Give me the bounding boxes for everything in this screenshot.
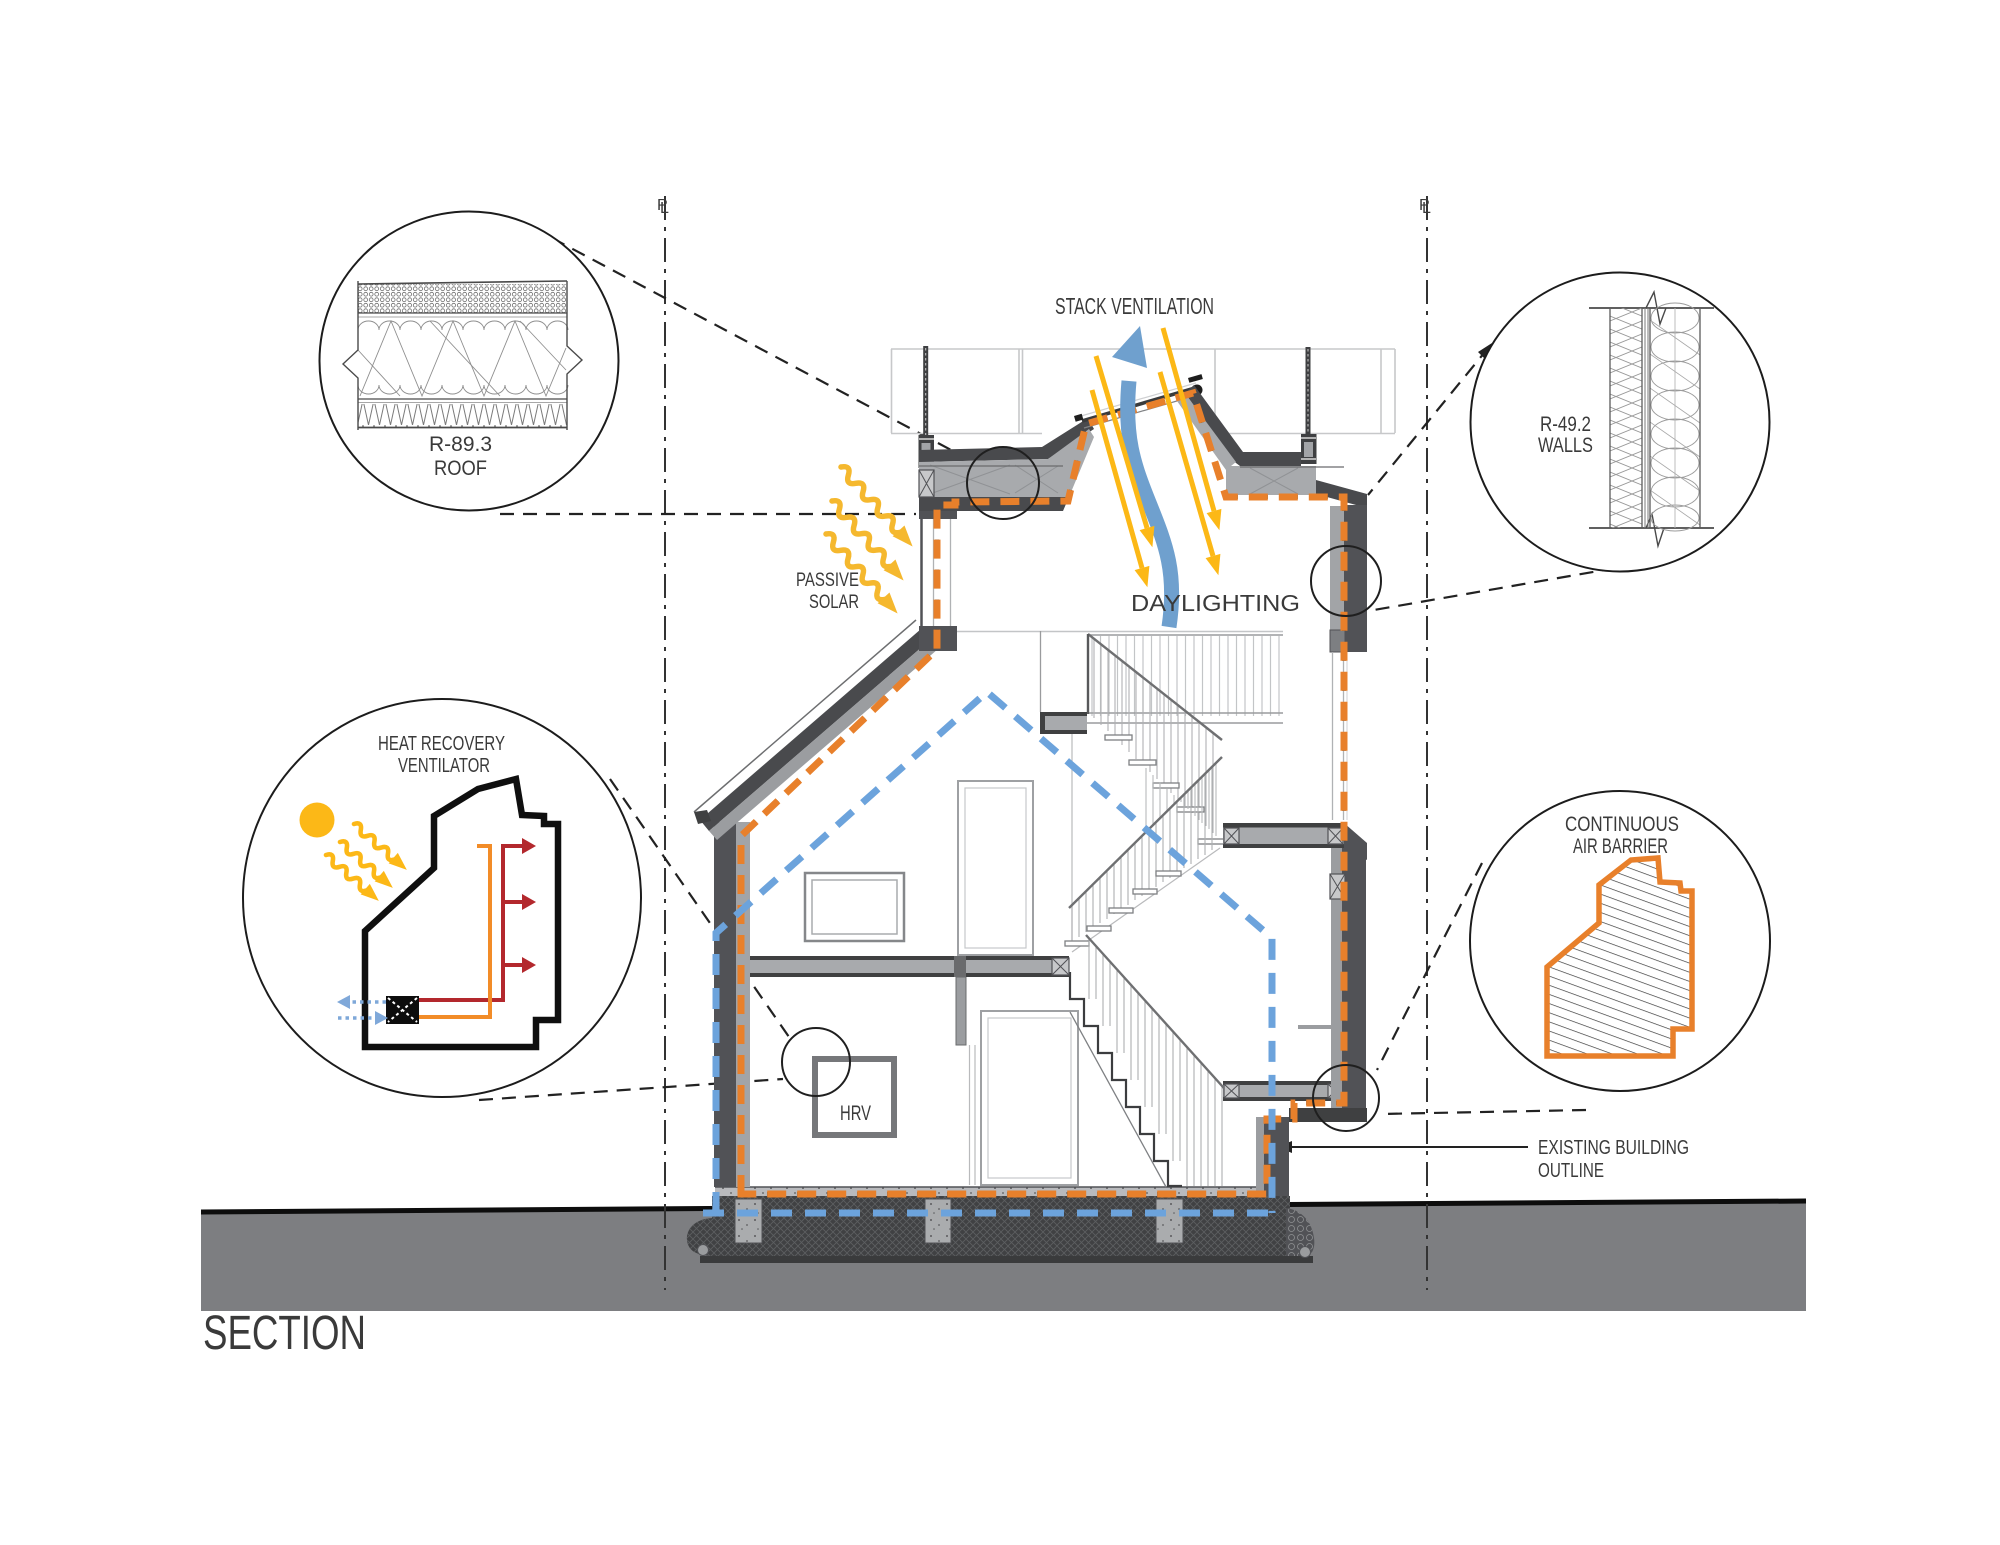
svg-text:EXISTING BUILDING: EXISTING BUILDING: [1538, 1136, 1689, 1159]
svg-text:WALLS: WALLS: [1538, 433, 1593, 457]
svg-text:L: L: [1422, 200, 1431, 217]
svg-text:ROOF: ROOF: [434, 456, 487, 480]
svg-text:OUTLINE: OUTLINE: [1538, 1159, 1604, 1182]
svg-text:AIR BARRIER: AIR BARRIER: [1573, 834, 1668, 858]
svg-text:R-89.3: R-89.3: [429, 432, 492, 456]
svg-text:STACK VENTILATION: STACK VENTILATION: [1055, 293, 1214, 319]
svg-text:HEAT RECOVERY: HEAT RECOVERY: [378, 732, 505, 755]
svg-text:PASSIVE: PASSIVE: [796, 569, 859, 591]
svg-text:DAYLIGHTING: DAYLIGHTING: [1131, 590, 1300, 616]
svg-text:HRV: HRV: [840, 1102, 871, 1125]
svg-text:CONTINUOUS: CONTINUOUS: [1565, 812, 1679, 836]
svg-text:SOLAR: SOLAR: [809, 591, 859, 613]
svg-text:SECTION: SECTION: [203, 1307, 366, 1360]
svg-text:VENTILATOR: VENTILATOR: [398, 754, 490, 777]
svg-text:L: L: [660, 200, 669, 217]
